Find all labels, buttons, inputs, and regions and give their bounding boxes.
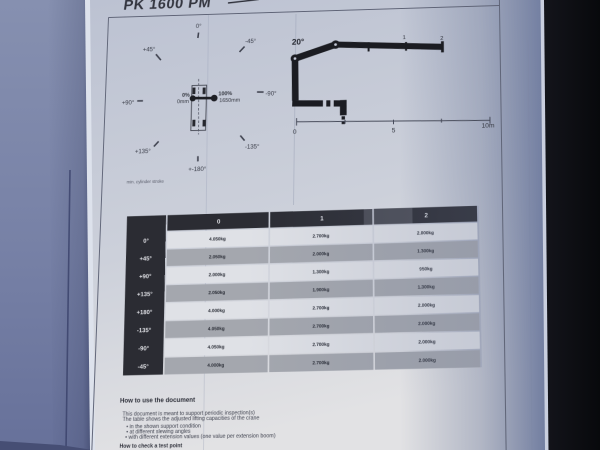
svg-text:0mm: 0mm (177, 99, 189, 105)
svg-text:5: 5 (392, 127, 396, 134)
svg-text:20°: 20° (292, 37, 305, 46)
svg-text:-45°: -45° (245, 39, 256, 45)
svg-text:+135°: +135° (135, 149, 151, 156)
svg-text:-90°: -90° (265, 91, 276, 97)
svg-text:0°: 0° (196, 24, 202, 30)
svg-text:How to check a test point: How to check a test point (119, 443, 182, 450)
svg-text:+-180°: +-180° (188, 167, 206, 174)
svg-text:1: 1 (403, 35, 406, 41)
svg-text:min. cylinder stroke: min. cylinder stroke (127, 178, 165, 184)
svg-text:0: 0 (293, 128, 297, 135)
svg-text:2: 2 (440, 36, 443, 42)
svg-text:+45°: +45° (143, 47, 156, 53)
svg-text:-135°: -135° (245, 144, 260, 151)
svg-text:PK 1600 PM: PK 1600 PM (122, 0, 212, 14)
svg-text:How to use the document: How to use the document (120, 397, 195, 405)
svg-text:1650mm: 1650mm (219, 98, 240, 105)
svg-text:10m: 10m (481, 122, 494, 130)
svg-text:0%: 0% (182, 92, 190, 98)
svg-text:+90°: +90° (122, 101, 135, 107)
svg-text:100%: 100% (218, 91, 232, 98)
